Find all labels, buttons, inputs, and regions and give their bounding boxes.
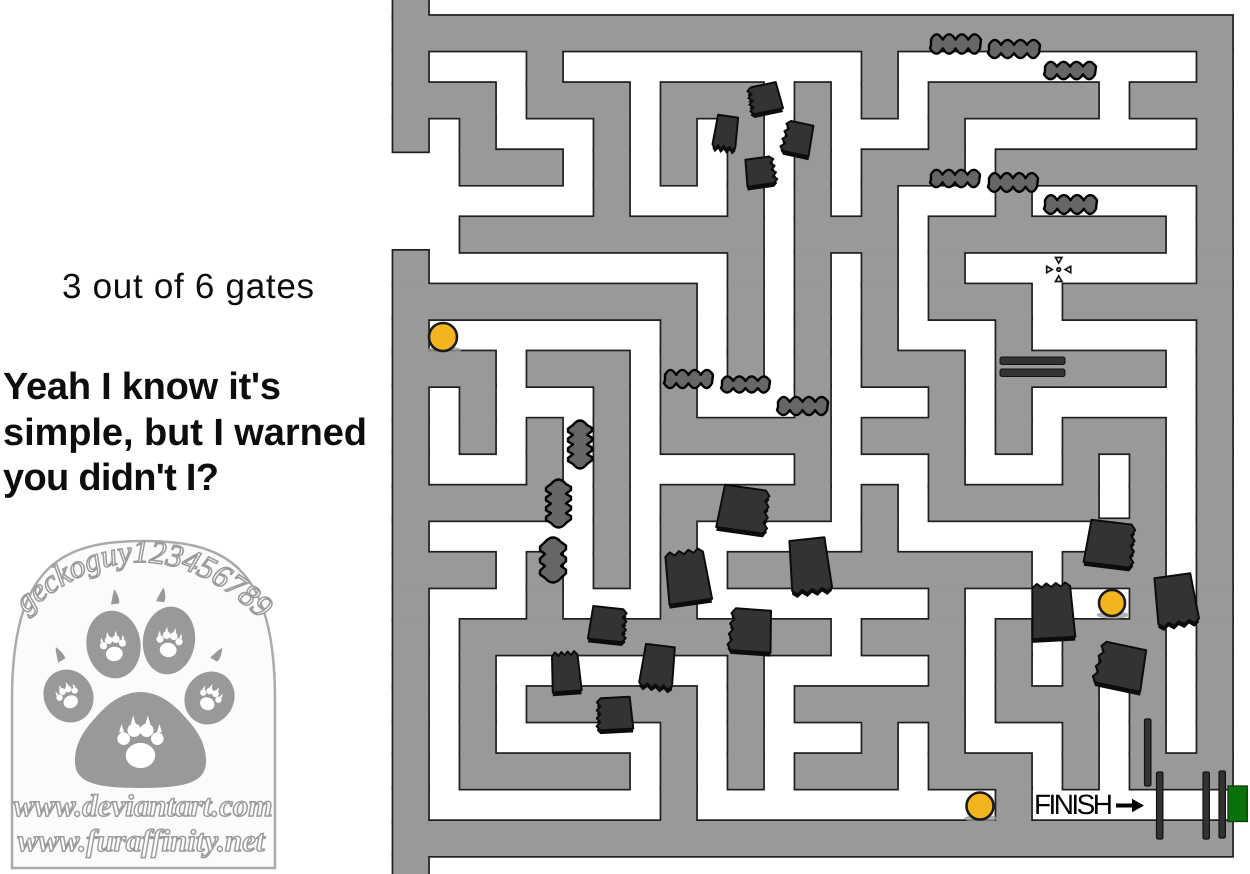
- svg-text:you didn't I?: you didn't I?: [3, 457, 219, 499]
- svg-text:www.deviantart.com: www.deviantart.com: [14, 788, 273, 823]
- svg-text:www.furaffinity.net: www.furaffinity.net: [18, 823, 266, 858]
- svg-text:Yeah I know it's: Yeah I know it's: [3, 366, 281, 408]
- svg-text:3 out of 6 gates: 3 out of 6 gates: [62, 267, 314, 306]
- svg-text:FINISH: FINISH: [1034, 789, 1113, 820]
- svg-text:simple, but I warned: simple, but I warned: [3, 412, 367, 454]
